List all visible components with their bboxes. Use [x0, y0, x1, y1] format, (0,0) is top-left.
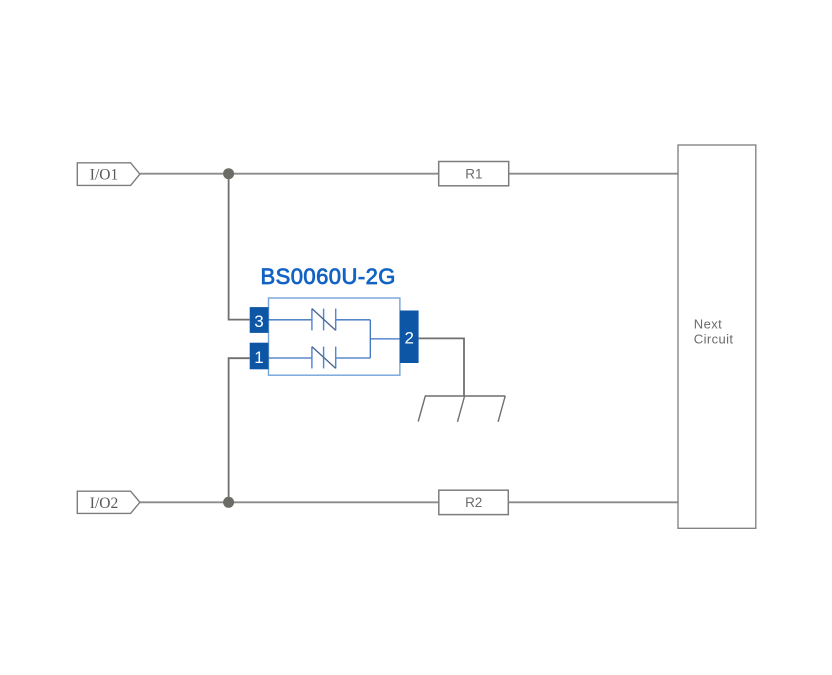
- svg-text:2: 2: [404, 329, 413, 348]
- svg-text:R1: R1: [465, 166, 482, 181]
- svg-text:Circuit: Circuit: [694, 332, 734, 347]
- svg-text:3: 3: [254, 312, 263, 331]
- svg-text:1: 1: [254, 348, 263, 367]
- svg-text:I/O2: I/O2: [90, 495, 118, 512]
- svg-text:BS0060U-2G: BS0060U-2G: [261, 264, 396, 289]
- svg-text:Next: Next: [694, 317, 722, 332]
- svg-text:I/O1: I/O1: [90, 167, 118, 184]
- svg-text:R2: R2: [465, 495, 482, 510]
